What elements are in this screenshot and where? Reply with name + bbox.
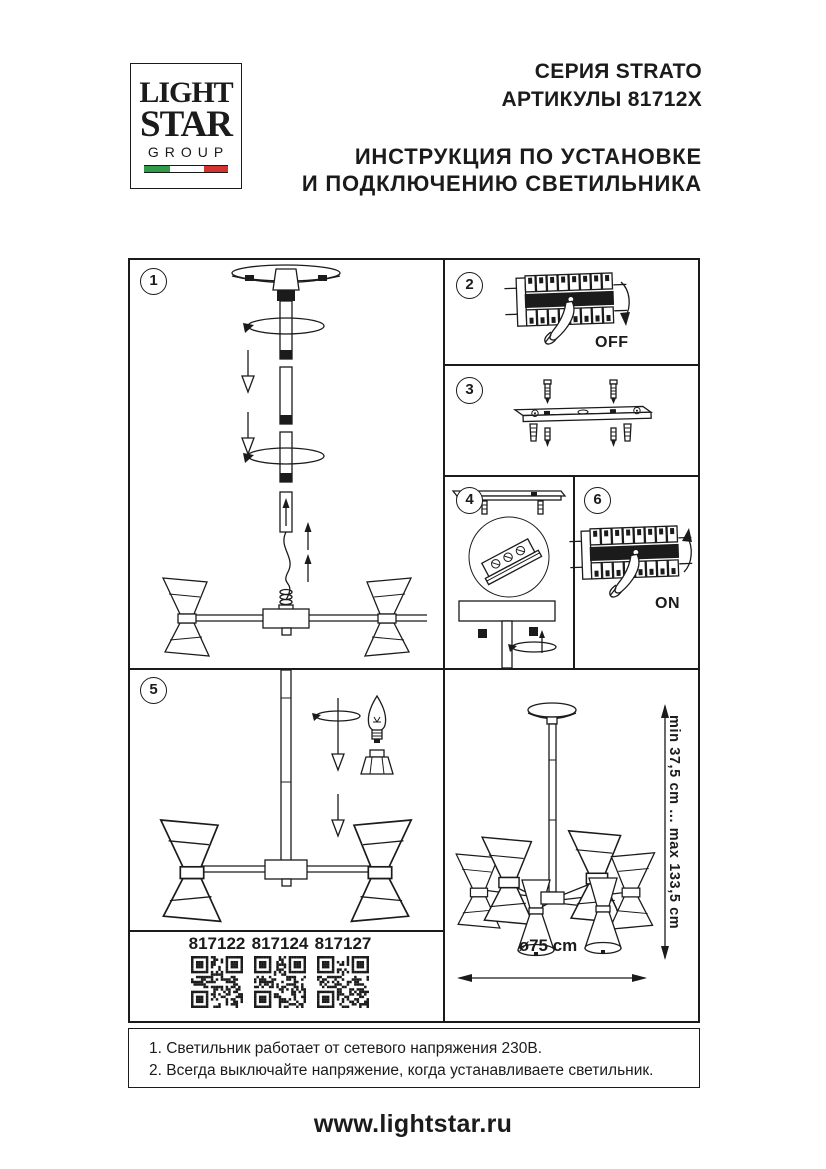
note-voltage: 1. Светильник работает от сетевого напря… (149, 1038, 699, 1060)
qr-panel: 817122 817124 817127 (130, 932, 443, 1021)
flag-red (204, 166, 228, 172)
logo-word-group: GROUP (136, 144, 241, 160)
off-label: OFF (595, 334, 629, 352)
step-2-breaker-off-diagram (445, 260, 698, 364)
step-5-shade-bulb-diagram (130, 670, 443, 930)
step-3-mounting-bracket-diagram (445, 366, 698, 475)
on-label: ON (655, 595, 680, 613)
step-5-badge: 5 (140, 677, 167, 704)
qr-code-817124 (254, 956, 306, 1008)
height-range-label: min 37,5 cm ... max 133,5 cm (666, 715, 682, 965)
instruction-grid: 1 2 3 4 6 5 (128, 258, 700, 1023)
qr-label-817127: 817127 (298, 934, 388, 954)
header-text: СЕРИЯ STRATO АРТИКУЛЫ 81712X ИНСТРУКЦИЯ … (302, 58, 702, 197)
note-power-off: 2. Всегда выключайте напряжение, когда у… (149, 1060, 699, 1082)
instruction-title-line1: ИНСТРУКЦИЯ ПО УСТАНОВКЕ (302, 143, 702, 170)
flag-white (170, 166, 204, 172)
safety-notes: 1. Светильник работает от сетевого напря… (128, 1028, 700, 1088)
articles-title: АРТИКУЛЫ 81712X (302, 86, 702, 114)
diameter-label: ø75 cm (503, 936, 593, 956)
step-2-badge: 2 (456, 272, 483, 299)
qr-code-817127 (317, 956, 369, 1008)
flag-green (144, 166, 170, 172)
step-4-badge: 4 (456, 487, 483, 514)
website-url: www.lightstar.ru (0, 1110, 826, 1139)
lightstar-logo: LIGHT STAR GROUP (130, 63, 242, 189)
instruction-sheet: LIGHT STAR GROUP СЕРИЯ STRATO АРТИКУЛЫ 8… (0, 0, 826, 1169)
step-3-badge: 3 (456, 377, 483, 404)
qr-code-817122 (191, 956, 243, 1008)
step-1-badge: 1 (140, 268, 167, 295)
step-6-badge: 6 (584, 487, 611, 514)
step-1-rod-assembly-diagram (130, 260, 443, 668)
chandelier-dimensions-diagram (445, 670, 698, 1021)
logo-word-star: STAR (131, 108, 241, 141)
italian-flag-bar (144, 165, 228, 173)
series-title: СЕРИЯ STRATO (302, 58, 702, 86)
instruction-title-line2: И ПОДКЛЮЧЕНИЮ СВЕТИЛЬНИКА (302, 170, 702, 197)
